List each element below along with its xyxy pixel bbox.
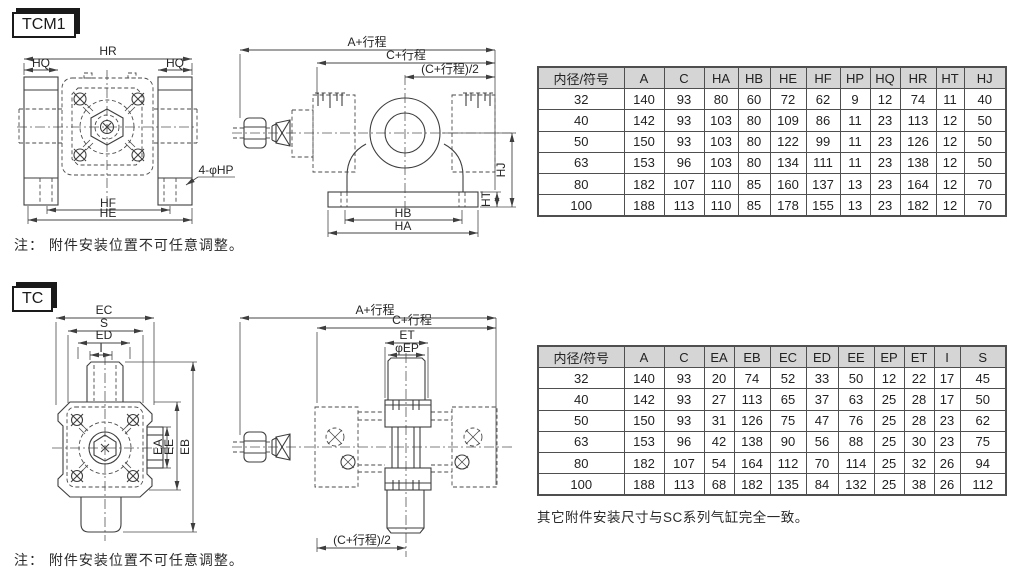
table-cell: 126 [734,410,770,431]
table-cell: 12 [936,152,964,173]
bracket-right [158,77,192,205]
dim-label-hq-right: HQ [166,56,184,70]
table-cell: 31 [704,410,734,431]
column-header: HR [900,67,936,89]
table-cell: 153 [624,152,664,173]
dim-label-ec: EC [96,303,113,317]
table-cell: 56 [806,431,838,452]
table-cell: 13 [840,173,870,194]
table-cell: 84 [806,474,838,496]
table-cell: 85 [738,173,770,194]
table-cell: 20 [704,368,734,389]
trunnion-pin-assembly [385,358,431,533]
table-cell: 80 [538,452,624,473]
table-cell: 25 [874,452,904,473]
table-cell: 28 [904,389,934,410]
table-cell: 94 [960,452,1006,473]
table-row: 5015093103801229911231261250 [538,131,1006,152]
column-header: I [934,346,960,368]
table-cell: 25 [874,474,904,496]
table-cell: 63 [538,431,624,452]
table-cell: 140 [624,89,664,110]
table-row: 80182107541641127011425322694 [538,452,1006,473]
table-cell: 93 [664,368,704,389]
table-cell: 80 [738,131,770,152]
dim-label-et: ET [399,328,415,342]
dim-label-c-stroke: C+行程 [392,312,432,327]
table-cell: 25 [874,389,904,410]
table-cell: 68 [704,474,734,496]
table-cell: 11 [840,152,870,173]
table-cell: 111 [806,152,840,173]
column-header: 内径/符号 [538,346,624,368]
table-cell: 23 [934,431,960,452]
dimensions: HR HQ HQ HF HE 4-φHP [24,44,235,224]
table-cell: 26 [934,452,960,473]
table-cell: 27 [704,389,734,410]
table-row: 321409380607262912741140 [538,89,1006,110]
table-cell: 138 [734,431,770,452]
centerlines [17,70,196,210]
table-cell: 96 [664,152,704,173]
table-cell: 26 [934,474,960,496]
table-cell: 38 [904,474,934,496]
bracket-left [24,77,58,205]
dim-label-hb: HB [395,206,412,220]
column-header: EP [874,346,904,368]
centerlines [232,75,516,215]
catalog-page: TCM1 [0,0,1012,573]
table-cell: 138 [900,152,936,173]
table-cell: 99 [806,131,840,152]
bracket-right-hidden-lines [154,109,197,203]
table-cell: 74 [900,89,936,110]
table-cell: 93 [664,110,704,131]
table-cell: 70 [964,195,1006,217]
table-cell: 62 [806,89,840,110]
table-row: 1001881131108517815513231821270 [538,195,1006,217]
table-cell: 25 [874,410,904,431]
table-cell: 164 [734,452,770,473]
table-cell: 88 [838,431,874,452]
table-cell: 188 [624,474,664,496]
table-cell: 45 [960,368,1006,389]
table-cell: 188 [624,195,664,217]
table-cell: 50 [964,131,1006,152]
table-cell: 155 [806,195,840,217]
table-cell: 182 [900,195,936,217]
dim-label-eb: EB [178,439,192,455]
table-row: 3214093207452335012221745 [538,368,1006,389]
column-header: EA [704,346,734,368]
table-cell: 12 [870,89,900,110]
table-cell: 33 [806,368,838,389]
table-cell: 13 [840,195,870,217]
table-cell: 50 [838,368,874,389]
dim-label-ee: EE [162,439,176,455]
table-cell: 50 [960,389,1006,410]
table-cell: 80 [738,152,770,173]
column-header: HF [806,67,840,89]
table-cell: 23 [870,195,900,217]
table-cell: 23 [870,173,900,194]
table-cell: 70 [806,452,838,473]
table-cell: 22 [904,368,934,389]
dim-label-hr: HR [99,44,117,58]
table-cell: 28 [904,410,934,431]
table-cell: 62 [960,410,1006,431]
table-cell: 132 [838,474,874,496]
dim-label-c-stroke-half: (C+行程)/2 [333,532,391,547]
table-cell: 103 [704,152,738,173]
table-cell: 75 [960,431,1006,452]
table-cell: 23 [870,131,900,152]
table-cell: 103 [704,131,738,152]
table-cell: 12 [936,131,964,152]
table-cell: 40 [964,89,1006,110]
table-cell: 142 [624,110,664,131]
table-cell: 93 [664,410,704,431]
table-cell: 182 [624,452,664,473]
table-cell: 85 [738,195,770,217]
section-title-tcm1: TCM1 [12,12,76,38]
column-header: EE [838,346,874,368]
dim-label-i: I [99,341,102,355]
table-cell: 32 [538,368,624,389]
table-cell: 113 [900,110,936,131]
table-cell: 37 [806,389,838,410]
table-cell: 47 [806,410,838,431]
table-cell: 63 [538,152,624,173]
column-header: HA [704,67,738,89]
table-cell: 11 [840,110,870,131]
table-cell: 109 [770,110,806,131]
table-row: 1001881136818213584132253826112 [538,474,1006,496]
table-cell: 12 [936,110,964,131]
table-row: 4014293103801098611231131250 [538,110,1006,131]
table-cell: 150 [624,131,664,152]
table-cell: 76 [838,410,874,431]
table-row: 50150933112675477625282362 [538,410,1006,431]
table-cell: 93 [664,131,704,152]
dim-label-c-stroke-half: (C+行程)/2 [421,61,479,76]
table-cell: 153 [624,431,664,452]
table-cell: 110 [704,173,738,194]
table-cell: 75 [770,410,806,431]
table-cell: 96 [664,431,704,452]
table-cell: 9 [840,89,870,110]
column-header: S [960,346,1006,368]
table-cell: 40 [538,389,624,410]
dimensions: A+行程 C+行程 ET φEP (C+行程)/2 [240,302,496,552]
column-header: HP [840,67,870,89]
tcm1-dimension-table: 内径/符号ACHAHBHEHFHPHQHRHTHJ321409380607262… [537,66,1007,217]
dim-label-he: HE [100,206,117,220]
tcm1-side-view-drawing: A+行程 C+行程 (C+行程)/2 HJ HT HB HA [228,30,520,245]
dim-label-ha: HA [395,219,412,233]
table-cell: 178 [770,195,806,217]
table-cell: 137 [806,173,840,194]
table-cell: 17 [934,389,960,410]
table-cell: 42 [704,431,734,452]
table-row: 40142932711365376325281750 [538,389,1006,410]
table-cell: 50 [964,110,1006,131]
dim-label-ht: HT [479,190,493,207]
table-cell: 12 [936,173,964,194]
section-title-tcm1-label: TCM1 [22,16,66,33]
table-cell: 110 [704,195,738,217]
table-cell: 135 [770,474,806,496]
tc-footnote: 其它附件安装尺寸与SC系列气缸完全一致。 [537,506,809,526]
table-cell: 107 [664,452,704,473]
table-cell: 182 [734,474,770,496]
table-cell: 93 [664,389,704,410]
dimensions: EC S ED I EA EE EB [56,303,197,532]
table-cell: 30 [904,431,934,452]
table-cell: 150 [624,410,664,431]
table-cell: 25 [874,431,904,452]
dim-label-a-stroke: A+行程 [355,302,394,317]
pillow-block [328,98,478,207]
table-cell: 107 [664,173,704,194]
table-cell: 122 [770,131,806,152]
table-row: 801821071108516013713231641270 [538,173,1006,194]
screw-symbols [326,428,482,469]
table-cell: 17 [934,368,960,389]
table-cell: 160 [770,173,806,194]
tcm1-note: 注： 附件安装位置不可任意调整。 [14,235,244,255]
table-row: 63153964213890568825302375 [538,431,1006,452]
table-cell: 50 [538,410,624,431]
table-cell: 126 [900,131,936,152]
table-cell: 60 [738,89,770,110]
table-cell: 54 [704,452,734,473]
table-cell: 23 [934,410,960,431]
table-cell: 63 [838,389,874,410]
table-cell: 65 [770,389,806,410]
table-cell: 40 [538,110,624,131]
table-cell: 32 [904,452,934,473]
table-cell: 74 [734,368,770,389]
table-cell: 11 [840,131,870,152]
column-header: 内径/符号 [538,67,624,89]
column-header: EB [734,346,770,368]
column-header: HT [936,67,964,89]
table-cell: 142 [624,389,664,410]
table-cell: 114 [838,452,874,473]
dim-label-hj: HJ [494,163,508,178]
dim-label-c-stroke: C+行程 [386,47,426,62]
column-header: EC [770,346,806,368]
table-cell: 86 [806,110,840,131]
tc-side-view-drawing: A+行程 C+行程 ET φEP (C+行程)/2 [228,295,520,573]
dim-label-a-stroke: A+行程 [347,34,386,49]
dim-label-ed: ED [96,328,113,342]
bracket-left-hidden-lines [19,109,62,203]
column-header: C [664,346,704,368]
table-cell: 80 [738,110,770,131]
table-cell: 80 [704,89,738,110]
table-header-row: 内径/符号ACHAHBHEHFHPHQHRHTHJ [538,67,1006,89]
table-cell: 32 [538,89,624,110]
tcm1-front-view-drawing: HR HQ HQ HF HE 4-φHP [14,42,244,234]
dim-label-hq-left: HQ [32,56,50,70]
column-header: ET [904,346,934,368]
table-cell: 100 [538,474,624,496]
table-cell: 11 [936,89,964,110]
table-cell: 80 [538,173,624,194]
table-cell: 50 [538,131,624,152]
tc-front-view-drawing: EC S ED I EA EE EB [14,295,219,553]
dim-label-ep: φEP [395,341,419,355]
table-cell: 93 [664,89,704,110]
table-cell: 113 [734,389,770,410]
table-cell: 12 [936,195,964,217]
column-header: HE [770,67,806,89]
table-cell: 113 [664,474,704,496]
table-cell: 100 [538,195,624,217]
cylinder-body-hidden [233,95,495,207]
table-cell: 72 [770,89,806,110]
table-cell: 50 [964,152,1006,173]
table-cell: 140 [624,368,664,389]
table-cell: 112 [960,474,1006,496]
tc-dimension-table: 内径/符号ACEAEBECEDEEEPETIS32140932074523350… [537,345,1007,496]
table-cell: 134 [770,152,806,173]
column-header: HB [738,67,770,89]
table-cell: 182 [624,173,664,194]
table-row: 63153961038013411111231381250 [538,152,1006,173]
table-cell: 23 [870,110,900,131]
table-cell: 52 [770,368,806,389]
table-cell: 90 [770,431,806,452]
column-header: A [624,346,664,368]
column-header: A [624,67,664,89]
table-cell: 23 [870,152,900,173]
table-cell: 12 [874,368,904,389]
trunnion-pin-bottom [81,497,121,532]
table-cell: 103 [704,110,738,131]
table-header-row: 内径/符号ACEAEBECEDEEEPETIS [538,346,1006,368]
table-cell: 112 [770,452,806,473]
column-header: ED [806,346,838,368]
column-header: HJ [964,67,1006,89]
column-header: HQ [870,67,900,89]
table-cell: 164 [900,173,936,194]
column-header: C [664,67,704,89]
table-cell: 113 [664,195,704,217]
table-cell: 70 [964,173,1006,194]
tc-note: 注： 附件安装位置不可任意调整。 [14,550,244,570]
